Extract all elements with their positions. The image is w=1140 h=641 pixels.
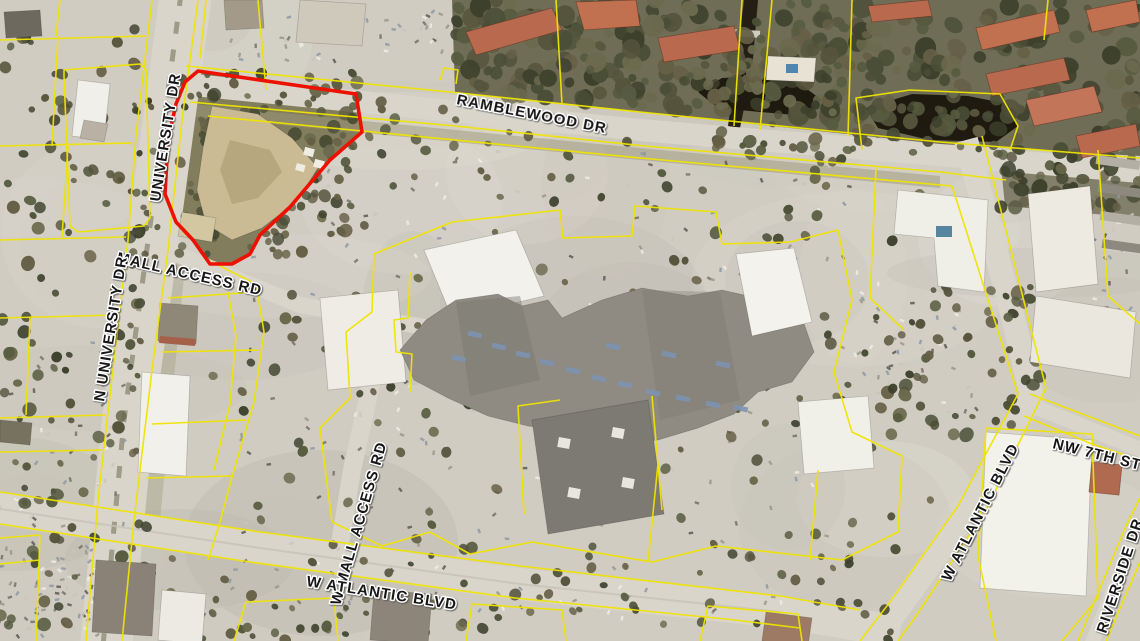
mall-south-wing: [532, 400, 664, 534]
mall-anchor-west: [320, 290, 406, 390]
building: [80, 120, 108, 142]
roof-vent: [621, 477, 635, 489]
mall-east-building: [798, 396, 874, 474]
building: [1028, 186, 1098, 292]
building: [296, 0, 366, 46]
roof-vent: [567, 487, 581, 499]
roof-vent: [557, 437, 571, 449]
building: [158, 590, 206, 641]
hotel-pool: [936, 226, 952, 237]
building: [4, 10, 42, 38]
aerial-map[interactable]: UNIVERSITY DR RAMBLEWOOD DR MALL ACCESS …: [0, 0, 1140, 641]
map-viewport[interactable]: UNIVERSITY DR RAMBLEWOOD DR MALL ACCESS …: [0, 0, 1140, 641]
roof-vent: [611, 427, 625, 439]
apartment-roof: [576, 0, 640, 30]
clubhouse-pool: [786, 64, 798, 73]
building: [0, 420, 32, 445]
